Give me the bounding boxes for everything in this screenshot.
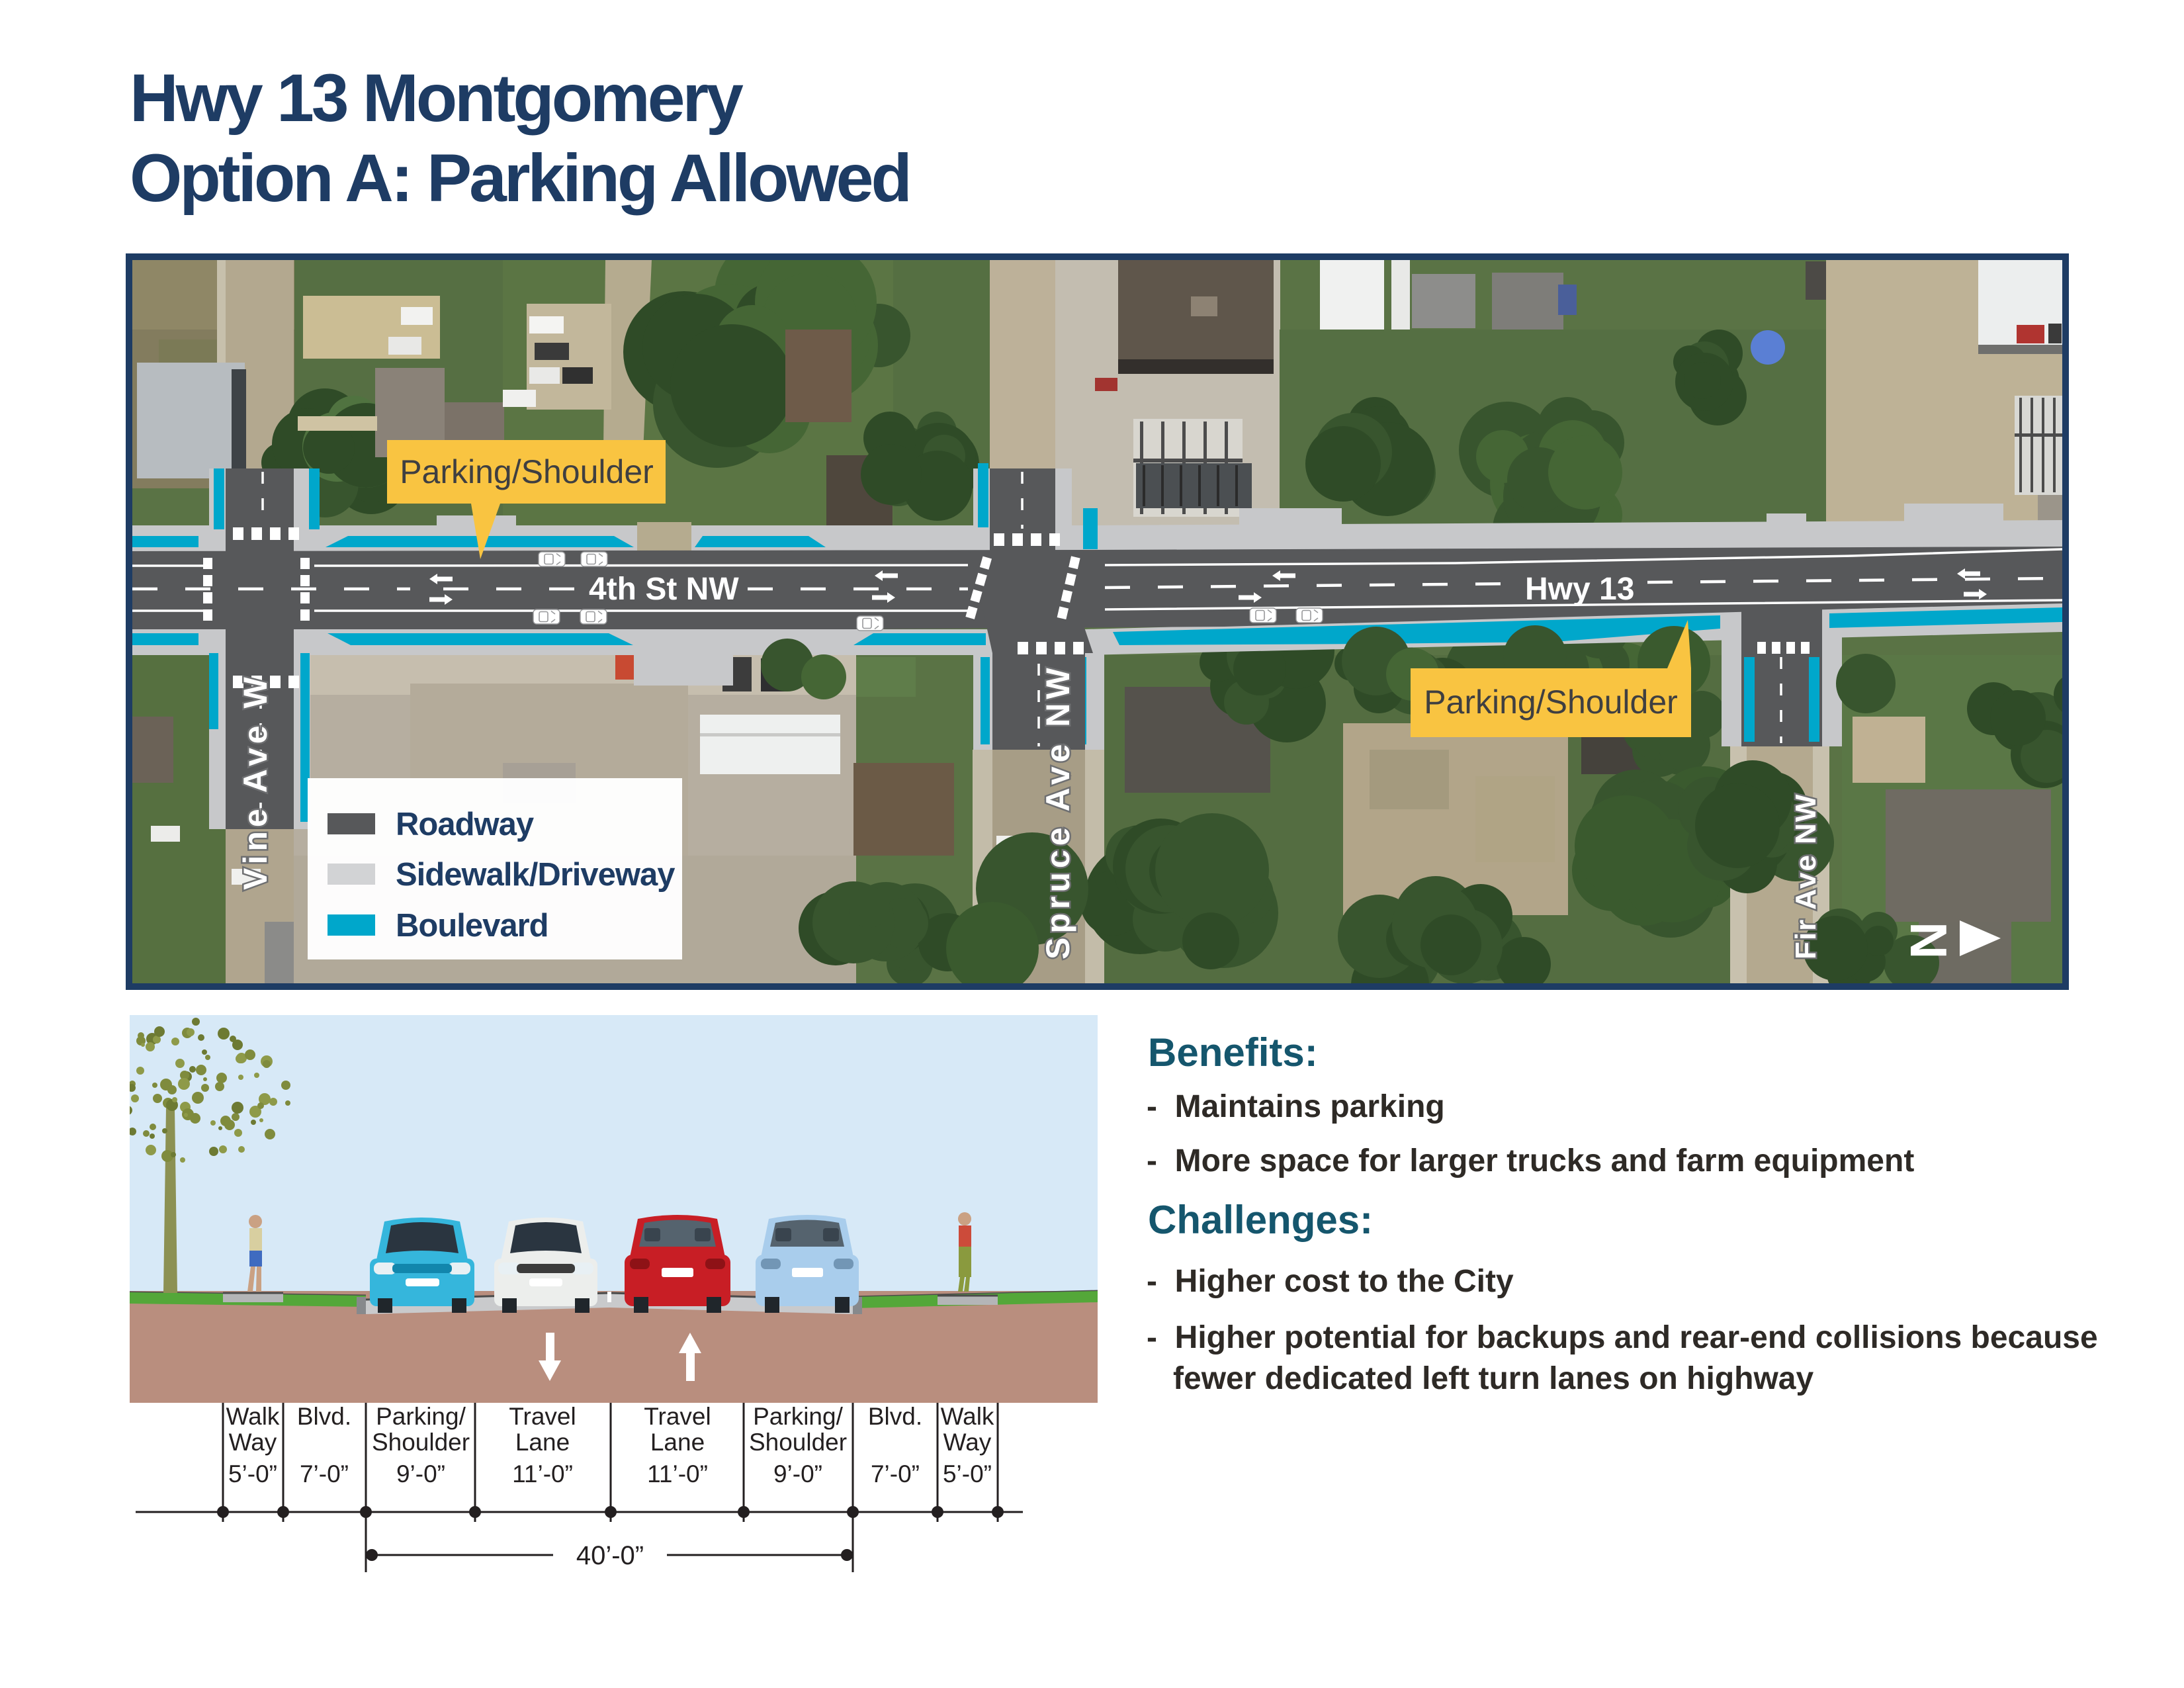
svg-text:Lane: Lane: [515, 1429, 570, 1456]
svg-text:Blvd.: Blvd.: [868, 1403, 922, 1430]
svg-text:7’-0”: 7’-0”: [300, 1460, 349, 1488]
svg-text:7’-0”: 7’-0”: [871, 1460, 920, 1488]
svg-text:Boulevard: Boulevard: [396, 908, 548, 944]
svg-text:11’-0”: 11’-0”: [512, 1460, 573, 1488]
svg-text:5’-0”: 5’-0”: [943, 1460, 992, 1488]
svg-text:N: N: [1900, 922, 1958, 959]
svg-text:Way: Way: [943, 1429, 992, 1456]
svg-text:Parking/: Parking/: [753, 1403, 843, 1430]
svg-text:Spruce Ave NW: Spruce Ave NW: [1039, 664, 1076, 959]
svg-text:Parking/Shoulder: Parking/Shoulder: [400, 453, 654, 490]
svg-text:Fir Ave NW: Fir Ave NW: [1790, 793, 1822, 959]
svg-text:Lane: Lane: [650, 1429, 705, 1456]
svg-text:Roadway: Roadway: [396, 807, 534, 842]
svg-text:Travel: Travel: [509, 1403, 576, 1430]
svg-text:Shoulder: Shoulder: [372, 1429, 470, 1456]
svg-text:11’-0”: 11’-0”: [647, 1460, 708, 1488]
svg-text:5’-0”: 5’-0”: [228, 1460, 277, 1488]
svg-text:Blvd.: Blvd.: [297, 1403, 351, 1430]
svg-text:Parking/: Parking/: [376, 1403, 466, 1430]
svg-text:Hwy 13: Hwy 13: [1525, 572, 1634, 607]
svg-text:40’-0”: 40’-0”: [576, 1541, 644, 1570]
svg-text:Shoulder: Shoulder: [749, 1429, 847, 1456]
svg-text:4th St NW: 4th St NW: [589, 572, 739, 607]
svg-text:Travel: Travel: [644, 1403, 711, 1430]
svg-text:Walk: Walk: [226, 1403, 280, 1430]
svg-text:Parking/Shoulder: Parking/Shoulder: [1424, 684, 1678, 721]
svg-text:Vine Ave W: Vine Ave W: [237, 673, 274, 890]
svg-text:Way: Way: [229, 1429, 277, 1456]
svg-text:Walk: Walk: [941, 1403, 994, 1430]
svg-text:Sidewalk/Driveway: Sidewalk/Driveway: [396, 857, 675, 893]
svg-text:9’-0”: 9’-0”: [396, 1460, 445, 1488]
svg-text:9’-0”: 9’-0”: [773, 1460, 822, 1488]
